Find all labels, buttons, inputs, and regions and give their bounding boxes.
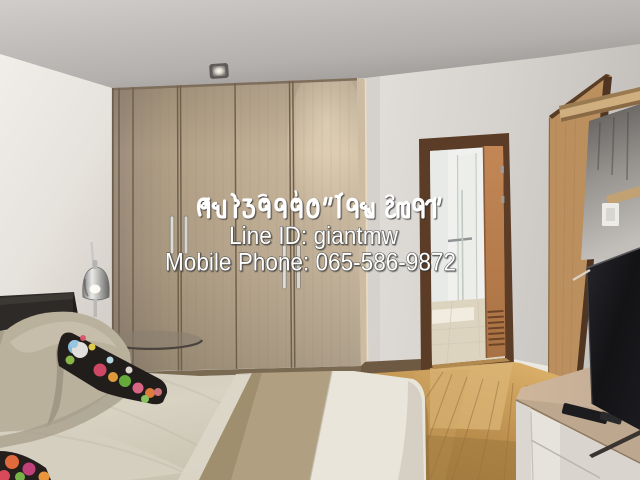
svg-text:Mobile Phone: 065-586-9872: Mobile Phone: 065-586-9872 bbox=[165, 249, 456, 277]
svg-text:Line ID: giantmw: Line ID: giantmw bbox=[229, 222, 399, 250]
